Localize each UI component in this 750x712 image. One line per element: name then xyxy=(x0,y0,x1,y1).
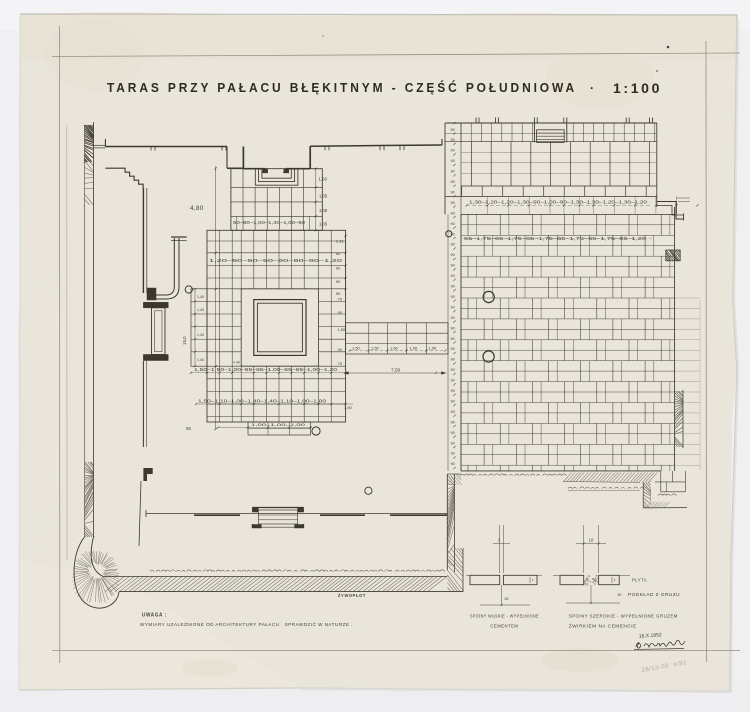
svg-text:90: 90 xyxy=(336,279,341,284)
svg-text:90: 90 xyxy=(451,285,455,289)
svg-text:7: 7 xyxy=(614,579,616,583)
svg-text:WYMIARY UZALEŻNIONE OD ARCHITE: WYMIARY UZALEŻNIONE OD ARCHITEKTURY PAŁA… xyxy=(140,622,353,627)
svg-text:15,0: 15,0 xyxy=(182,336,187,345)
svg-text:90: 90 xyxy=(451,316,455,320)
svg-text:7: 7 xyxy=(532,579,534,583)
svg-text:1,50: 1,50 xyxy=(371,345,380,350)
svg-text:90: 90 xyxy=(186,426,191,431)
svg-text:7,50: 7,50 xyxy=(391,367,401,373)
svg-text:90: 90 xyxy=(451,326,455,330)
svg-text:1,50: 1,50 xyxy=(429,345,438,350)
svg-text:90: 90 xyxy=(451,191,455,195)
svg-text:1,05: 1,05 xyxy=(319,194,328,199)
svg-text:90: 90 xyxy=(451,180,455,184)
svg-text:90: 90 xyxy=(451,358,455,362)
svg-text:ŻYWOPŁOT: ŻYWOPŁOT xyxy=(338,592,366,598)
svg-text:90: 90 xyxy=(338,310,343,315)
svg-text:UWAGA :: UWAGA : xyxy=(142,612,167,618)
svg-text:·: · xyxy=(590,81,594,95)
svg-text:75: 75 xyxy=(338,361,343,366)
svg-text:65–1,75–65–1,75–65–1,75–65–1,7: 65–1,75–65–1,75–65–1,75–65–1,75–65–1,75–… xyxy=(464,236,647,241)
svg-text:90: 90 xyxy=(451,305,455,309)
svg-text:75: 75 xyxy=(338,297,343,302)
svg-text:ŻWIRKIEM NA CEMENCIE: ŻWIRKIEM NA CEMENCIE xyxy=(569,623,637,628)
svg-text:90: 90 xyxy=(451,170,455,174)
svg-text:1,30–1,20–1,20–1,30–90–1,00–90: 1,30–1,20–1,20–1,30–90–1,00–90–1,30–1,30… xyxy=(469,200,648,205)
svg-text:90: 90 xyxy=(451,128,455,132)
svg-text:90: 90 xyxy=(451,222,455,226)
svg-text:1,00–1,00–1,00: 1,00–1,00–1,00 xyxy=(251,422,306,427)
svg-text:90: 90 xyxy=(451,452,455,456)
svg-text:CEMENTEM: CEMENTEM xyxy=(490,623,518,628)
svg-text:90: 90 xyxy=(451,368,455,372)
svg-text:PODKŁAD Z GRUZU: PODKŁAD Z GRUZU xyxy=(628,592,680,597)
svg-text:90: 90 xyxy=(451,201,455,205)
svg-text:90: 90 xyxy=(451,253,455,257)
svg-text:90: 90 xyxy=(451,243,455,247)
svg-text:1,50: 1,50 xyxy=(390,345,399,350)
svg-text:90: 90 xyxy=(451,274,455,278)
svg-text:1,31: 1,31 xyxy=(336,238,345,243)
svg-text:SPOINY WĄSKIE - WYPEŁNIONE: SPOINY WĄSKIE - WYPEŁNIONE xyxy=(470,614,539,619)
svg-text:90: 90 xyxy=(451,420,455,424)
svg-text:90: 90 xyxy=(451,295,455,299)
svg-text:90: 90 xyxy=(451,149,455,153)
svg-text:90: 90 xyxy=(451,211,455,215)
svg-text:1,50: 1,50 xyxy=(319,177,328,182)
svg-text:1,05: 1,05 xyxy=(319,222,328,227)
svg-text:1,05: 1,05 xyxy=(319,208,328,213)
svg-text:90: 90 xyxy=(336,266,341,271)
svg-text:15: 15 xyxy=(617,593,621,597)
svg-text:PŁYTA: PŁYTA xyxy=(632,577,647,582)
svg-text:90: 90 xyxy=(451,347,455,351)
svg-text:60: 60 xyxy=(336,251,341,256)
svg-text:1,50: 1,50 xyxy=(338,327,347,332)
svg-text:90–90–1,00–1,40–1,00–90: 90–90–1,00–1,40–1,00–90 xyxy=(233,220,306,225)
svg-text:90: 90 xyxy=(451,264,455,268)
svg-text:1,50: 1,50 xyxy=(410,345,419,350)
svg-text:15: 15 xyxy=(504,596,509,601)
svg-text:↳90: ↳90 xyxy=(233,361,240,365)
svg-text:90: 90 xyxy=(451,159,455,163)
svg-text:90: 90 xyxy=(451,410,455,414)
svg-text:1,40: 1,40 xyxy=(197,358,204,362)
svg-text:TARAS PRZY PAŁACU BŁĘKITNYM -: TARAS PRZY PAŁACU BŁĘKITNYM - CZĘŚĆ POŁU… xyxy=(107,80,577,95)
svg-text:90: 90 xyxy=(336,291,341,296)
svg-text:90: 90 xyxy=(451,337,455,341)
svg-text:1,50: 1,50 xyxy=(344,405,353,410)
svg-text:1,20–90–90–90–90–90–90–1,20: 1,20–90–90–90–90–90–90–1,20 xyxy=(209,258,343,263)
svg-text:1,40: 1,40 xyxy=(197,333,204,337)
svg-text:SPOINY SZEROKIE - WYPEŁNIONE G: SPOINY SZEROKIE - WYPEŁNIONE GRUZEM xyxy=(569,614,678,619)
svg-text:90: 90 xyxy=(338,347,343,352)
svg-text:1,50: 1,50 xyxy=(352,345,361,350)
svg-text:10: 10 xyxy=(589,538,594,543)
svg-text:90: 90 xyxy=(451,462,455,466)
svg-text:90: 90 xyxy=(451,400,455,404)
svg-text:90: 90 xyxy=(451,389,455,393)
svg-text:90: 90 xyxy=(451,379,455,383)
svg-text:1,50–1,50–1,00–65–65–1,00–65–6: 1,50–1,50–1,00–65–65–1,00–65–65–1,00–1,2… xyxy=(194,367,338,372)
svg-text:90: 90 xyxy=(451,441,455,445)
svg-text:1:100: 1:100 xyxy=(613,81,662,96)
svg-text:1,40: 1,40 xyxy=(197,295,204,299)
svg-text:1,40: 1,40 xyxy=(197,308,204,312)
svg-text:1,50–1,10–1,00–1,40–1,40–1,10–: 1,50–1,10–1,00–1,40–1,40–1,10–1,00–1,00 xyxy=(198,398,327,403)
svg-text:4,80: 4,80 xyxy=(190,205,204,212)
svg-text:90: 90 xyxy=(451,431,455,435)
